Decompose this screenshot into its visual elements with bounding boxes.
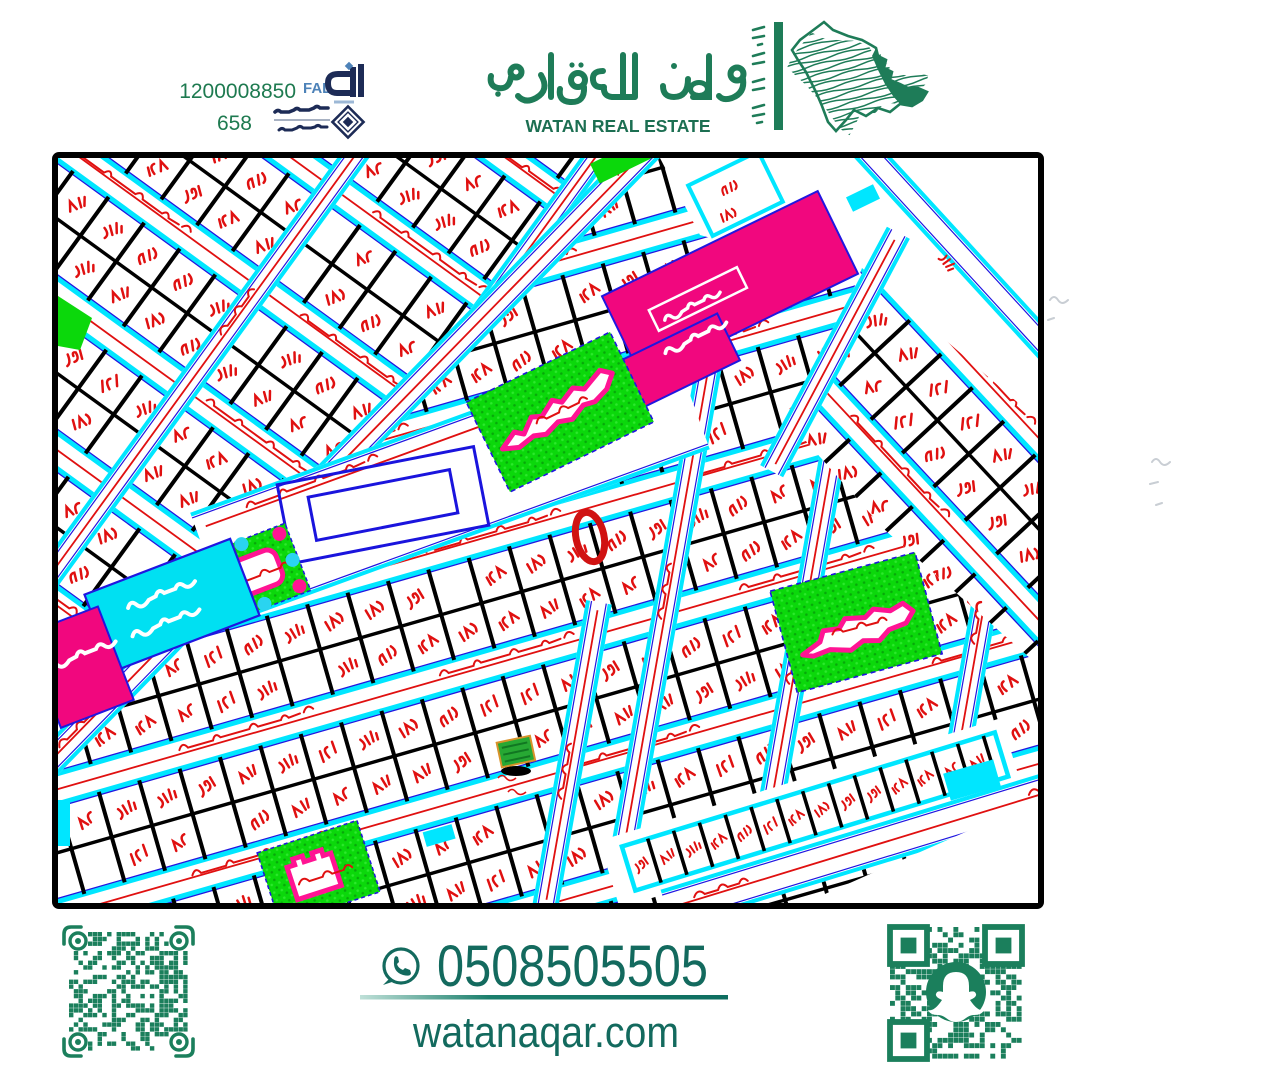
svg-text:658: 658 bbox=[217, 112, 252, 135]
svg-text:0508505505: 0508505505 bbox=[437, 934, 708, 999]
svg-text:watanaqar.com: watanaqar.com bbox=[412, 1008, 679, 1057]
svg-text:1200008850: 1200008850 bbox=[179, 80, 296, 103]
svg-text:WATAN REAL ESTATE: WATAN REAL ESTATE bbox=[525, 116, 710, 136]
